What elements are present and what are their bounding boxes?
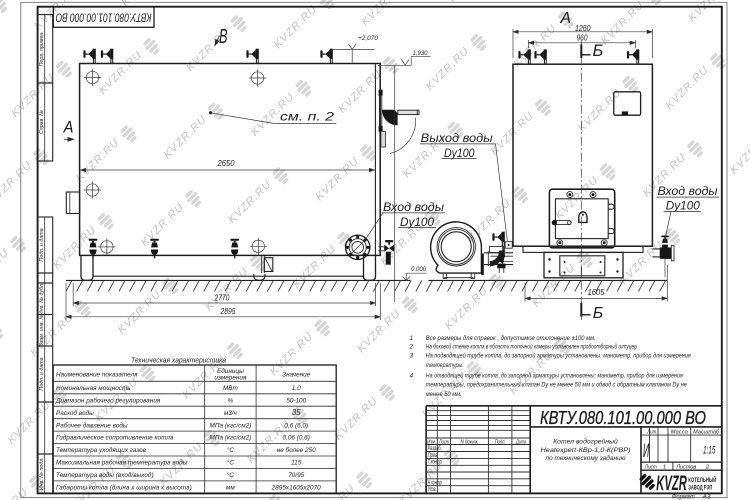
svg-text:Дата: Дата — [515, 439, 526, 445]
svg-text:1260: 1260 — [575, 24, 591, 33]
svg-text:1: 1 — [410, 335, 414, 342]
svg-text:А: А — [63, 118, 74, 137]
svg-text:KVZR.RU: KVZR.RU — [553, 174, 601, 222]
svg-text:1,0: 1,0 — [292, 385, 301, 392]
svg-text:Масштаб: Масштаб — [693, 430, 720, 436]
svg-text:50-100: 50-100 — [286, 397, 306, 404]
svg-text:Б: Б — [593, 305, 603, 322]
svg-text:70/95: 70/95 — [288, 472, 304, 479]
svg-text:Справ. №: Справ. № — [39, 110, 45, 134]
svg-text:KVZR.RU: KVZR.RU — [313, 155, 361, 203]
svg-text:KVZR.RU: KVZR.RU — [511, 22, 559, 70]
svg-text:1605: 1605 — [588, 288, 606, 297]
svg-text:°С: °С — [227, 459, 235, 467]
svg-text:На подводящей трубе котла, д: На подводящей трубе котла, до запорной а… — [426, 352, 691, 360]
svg-text:Перв. примен.: Перв. примен. — [39, 31, 45, 66]
svg-text:Значение: Значение — [282, 372, 310, 379]
svg-text:KVZR.RU: KVZR.RU — [9, 72, 57, 120]
svg-text:KVZR.RU: KVZR.RU — [97, 49, 145, 97]
svg-text:Изм.: Изм. — [427, 439, 436, 445]
svg-text:Масса: Масса — [671, 430, 688, 436]
svg-text:4: 4 — [410, 372, 414, 379]
svg-text:1: 1 — [663, 464, 666, 470]
svg-text:KVZR.RU: KVZR.RU — [0, 246, 12, 294]
svg-text:Гидравлическое сопротивление к: Гидравлическое сопротивление котла — [56, 434, 174, 442]
svg-text:Б: Б — [593, 42, 604, 60]
svg-text:Наименование показателя: Наименование показателя — [56, 372, 138, 379]
svg-text:менее 50 мм.: менее 50 мм. — [426, 391, 462, 398]
svg-text:2895х1605х2070: 2895х1605х2070 — [271, 485, 321, 492]
svg-text:KVZR.RU: KVZR.RU — [576, 87, 624, 135]
svg-text:0,6 (6,0): 0,6 (6,0) — [284, 422, 308, 429]
svg-text:Подп.: Подп. — [495, 439, 506, 445]
svg-text:KVZR.RU: KVZR.RU — [663, 64, 711, 112]
svg-text:Разраб.: Разраб. — [428, 446, 442, 452]
svg-text:2895: 2895 — [220, 307, 236, 316]
svg-text:Лист: Лист — [438, 439, 449, 445]
svg-text:KVZR.RU: KVZR.RU — [120, 0, 168, 9]
svg-text:KVZR: KVZR — [656, 472, 687, 495]
svg-text:А3: А3 — [702, 493, 711, 500]
svg-text:Техническая характеристика: Техническая характеристика — [131, 356, 226, 365]
svg-text:Взам. инв. №: Взам. инв. № — [39, 314, 45, 347]
svg-text:Рабочее давление воды: Рабочее давление воды — [56, 421, 128, 429]
svg-text:Формат: Формат — [672, 493, 695, 500]
svg-text:И: И — [643, 441, 649, 462]
svg-text:3: 3 — [410, 353, 414, 360]
svg-text:Номинальная мощность: Номинальная мощность — [56, 385, 131, 392]
svg-text:KVZR.RU: KVZR.RU — [530, 262, 578, 310]
svg-text:по техническому заданию: по техническому заданию — [546, 454, 626, 462]
svg-text:960: 960 — [577, 33, 588, 42]
svg-text:ЗАВОД РЭП: ЗАВОД РЭП — [688, 485, 712, 491]
svg-text:2650: 2650 — [217, 159, 235, 168]
svg-text:KVZR.RU: KVZR.RU — [359, 0, 407, 28]
svg-text:Температура уходящих газов: Температура уходящих газов — [56, 446, 147, 454]
svg-text:KVZR.RU: KVZR.RU — [74, 136, 122, 184]
svg-text:температуры.: температуры. — [426, 362, 464, 369]
svg-text:Н.контр.: Н.контр. — [428, 480, 443, 486]
svg-text:0,06 (0,6): 0,06 (0,6) — [283, 435, 310, 442]
svg-text:КОТЕЛЬНЫЙ: КОТЕЛЬНЫЙ — [688, 476, 716, 484]
svg-text:Котел водогрейный: Котел водогрейный — [553, 438, 618, 446]
svg-text:°С: °С — [227, 446, 235, 454]
svg-text:0.000: 0.000 — [411, 266, 426, 273]
svg-text:мм: мм — [226, 485, 235, 492]
svg-text:В: В — [219, 26, 228, 48]
svg-text:KVZR.RU: KVZR.RU — [728, 128, 750, 176]
svg-text:КВТУ.080.101.00.000 ВО: КВТУ.080.101.00.000 ВО — [540, 407, 706, 428]
svg-text:+2,070: +2,070 — [358, 35, 378, 42]
svg-text:Выход воды: Выход воды — [421, 131, 493, 145]
svg-text:KVZR.RU: KVZR.RU — [226, 178, 274, 226]
svg-text:Максимальная рабочая температу: Максимальная рабочая температура воды — [56, 459, 188, 467]
svg-text:МВт: МВт — [223, 385, 239, 392]
svg-text:Подп. и дата: Подп. и дата — [39, 228, 45, 261]
svg-text:На боковой стенке котла в обла: На боковой стенке котла в области топочн… — [426, 343, 637, 351]
svg-text:Подп. и дата: Подп. и дата — [39, 357, 45, 390]
svg-text:Габариты котла (длина х ширина: Габариты котла (длина х ширина х высота) — [56, 484, 192, 492]
svg-text:Heatexpert-КВр-1,0-К(РВР): Heatexpert-КВр-1,0-К(РВР) — [541, 447, 631, 454]
svg-text:2: 2 — [409, 344, 414, 351]
svg-text:Все размеры для справок , допу: Все размеры для справок , допустимое отк… — [426, 334, 596, 342]
svg-text:Инв. № дубл.: Инв. № дубл. — [39, 283, 45, 316]
svg-text:Т.контр.: Т.контр. — [428, 460, 443, 466]
svg-text:м3/ч: м3/ч — [224, 410, 238, 417]
svg-text:Вход воды: Вход воды — [658, 184, 718, 198]
svg-text:115: 115 — [291, 460, 302, 467]
svg-text:Диапазон рабочего регулировани: Диапазон рабочего регулирования — [55, 396, 161, 404]
svg-text:Лит.: Лит. — [647, 430, 658, 436]
svg-text:Утв.: Утв. — [427, 487, 437, 493]
svg-text:измерения: измерения — [214, 375, 247, 382]
svg-text:температуры, предохранительный: температуры, предохранительный клапан Dу… — [426, 381, 687, 389]
svg-text:МПа (кгс/см2): МПа (кгс/см2) — [210, 422, 252, 429]
svg-text:Температура воды (вход/выход): Температура воды (вход/выход) — [56, 471, 154, 479]
svg-text:Dy100: Dy100 — [666, 198, 700, 212]
svg-text:KVZR.RU: KVZR.RU — [272, 3, 320, 51]
svg-text:2: 2 — [705, 464, 709, 470]
svg-text:1,930: 1,930 — [413, 50, 428, 57]
svg-text:KVZR.RU: KVZR.RU — [447, 0, 495, 5]
svg-text:°С: °С — [227, 471, 235, 479]
svg-text:КВТУ.080.101.00.000 ВО: КВТУ.080.101.00.000 ВО — [56, 10, 152, 24]
svg-text:Расход воды: Расход воды — [56, 409, 94, 417]
svg-text:KVZR.RU: KVZR.RU — [332, 395, 380, 443]
svg-text:МПа (кгс/см2): МПа (кгс/см2) — [210, 435, 252, 442]
svg-text:На отводящей трубе котла ,до з: На отводящей трубе котла ,до запорной ар… — [426, 371, 683, 379]
svg-text:Инв. № подл.: Инв. № подл. — [39, 457, 45, 490]
svg-text:35: 35 — [292, 408, 301, 417]
svg-text:N докум.: N докум. — [461, 439, 479, 445]
svg-text:KVZR.RU: KVZR.RU — [355, 307, 403, 355]
svg-text:2770: 2770 — [214, 294, 230, 303]
svg-text:KVZR.RU: KVZR.RU — [291, 243, 339, 291]
svg-text:KVZR.RU: KVZR.RU — [5, 399, 53, 447]
svg-text:%: % — [228, 397, 234, 404]
svg-text:KVZR.RU: KVZR.RU — [424, 45, 472, 93]
svg-text:Вход воды: Вход воды — [383, 200, 444, 214]
svg-text:1:15: 1:15 — [703, 444, 716, 456]
svg-text:KVZR.RU: KVZR.RU — [116, 288, 164, 336]
svg-text:не более 250: не более 250 — [277, 446, 316, 454]
svg-text:Пров.: Пров. — [428, 453, 439, 459]
svg-text:KVZR.RU: KVZR.RU — [139, 201, 187, 249]
svg-text:А: А — [560, 10, 571, 27]
svg-text:KVZR.RU: KVZR.RU — [0, 159, 35, 207]
svg-text:Dy100: Dy100 — [400, 215, 434, 229]
svg-text:Листов: Листов — [675, 464, 696, 470]
svg-text:Dy100: Dy100 — [444, 146, 475, 160]
svg-text:KVZR.RU: KVZR.RU — [161, 113, 209, 161]
svg-text:KVZR.RU: KVZR.RU — [336, 68, 384, 116]
svg-text:KVZR.RU: KVZR.RU — [443, 284, 491, 332]
svg-text:Лист: Лист — [644, 464, 657, 470]
svg-text:см. п. 2: см. п. 2 — [280, 110, 334, 124]
